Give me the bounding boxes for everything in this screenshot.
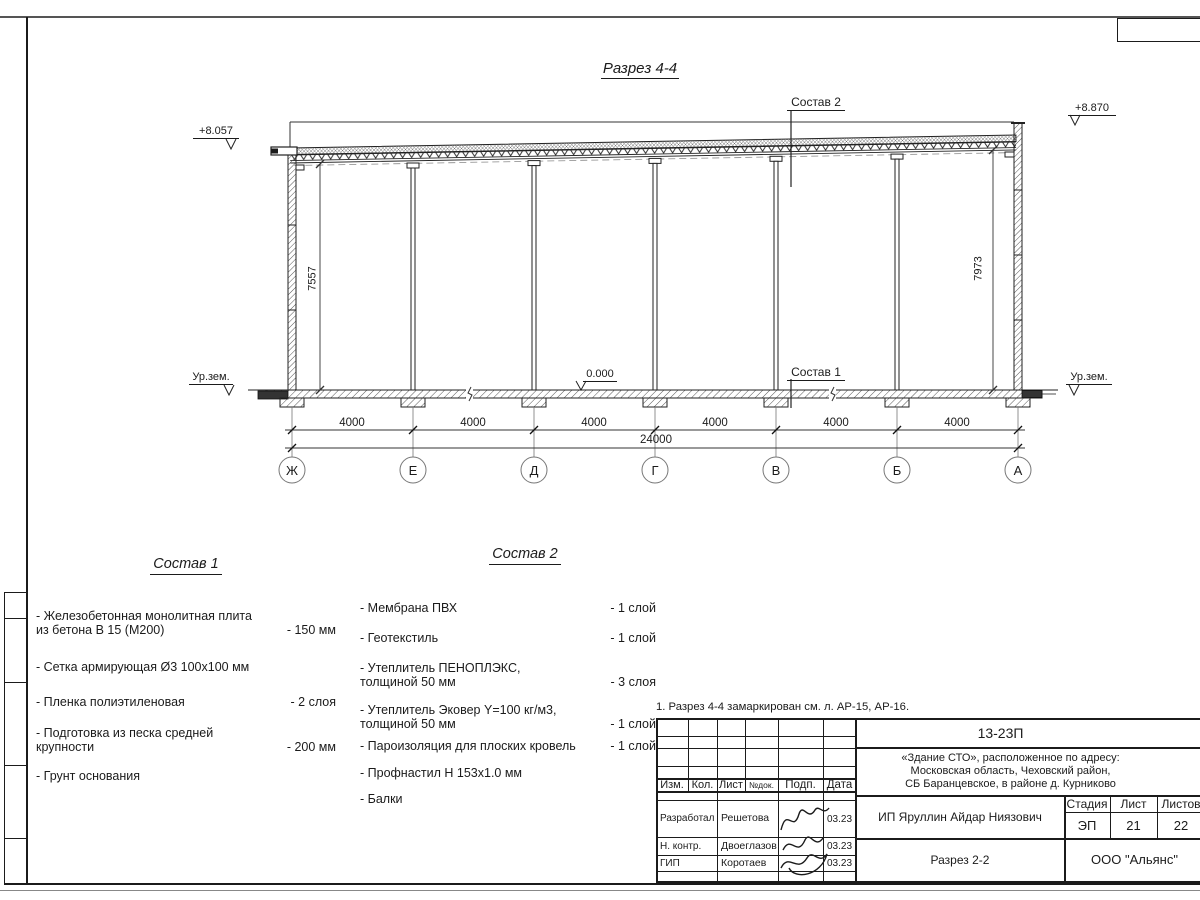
axis-extension-lines: [292, 407, 1018, 457]
bay-dimension: 4000: [443, 417, 503, 429]
header-ndok: №док.: [745, 778, 778, 791]
composition-1-heading-text: Состав 1: [150, 556, 221, 575]
list-item: - Пароизоляция для плоских кровель- 1 сл…: [360, 739, 656, 754]
signature-scribbles: [775, 794, 839, 882]
list-item: - Грунт основания: [36, 769, 336, 784]
axis-label: Б: [884, 458, 910, 483]
bay-dimension: 4000: [322, 417, 382, 429]
bay-dimension: 4000: [685, 417, 745, 429]
item-name: - Подготовка из песка средней крупности: [36, 726, 274, 755]
frame-bottom-line: [4, 883, 1200, 885]
item-name: - Утеплитель ПЕНОПЛЭКС, толщиной 50 мм: [360, 661, 598, 690]
address-line: Московская область, Чеховский район,: [911, 765, 1111, 778]
sheet-edge-line: [0, 890, 1200, 891]
left-wall: [271, 147, 297, 390]
list-item: - Геотекстиль- 1 слой: [360, 631, 656, 646]
drawing-title: Разрез 4-4: [585, 60, 695, 77]
titleblock-line: [656, 881, 1200, 883]
bay-dimension: 4000: [806, 417, 866, 429]
header-data: Дата: [823, 778, 856, 791]
row-role: Н. контр.: [656, 837, 721, 855]
elevation-top-right: +8.870: [1068, 102, 1116, 116]
axis-label: Е: [400, 458, 426, 483]
margin-line: [4, 592, 26, 593]
composition-2-heading: Состав 2: [360, 546, 656, 563]
margin-line: [4, 618, 26, 619]
height-dimension-left: 7557: [307, 249, 320, 309]
titleblock-line: [656, 791, 856, 793]
leader-label-sostav1-text: Состав 1: [791, 365, 841, 379]
item-qty: - 2 слоя: [291, 695, 336, 710]
ground-level-right: Ур.зем.: [1066, 371, 1112, 385]
axis-label: А: [1005, 458, 1031, 483]
item-qty: - 1 слой: [610, 601, 656, 616]
leader-label-sostav2: Состав 2: [787, 95, 845, 111]
list-item: - Подготовка из песка средней крупности-…: [36, 726, 336, 755]
item-name: - Профнастил Н 153х1.0 мм: [360, 766, 598, 781]
axis-label: Д: [521, 458, 547, 483]
drawing-title-text: Разрез 4-4: [601, 60, 679, 79]
signature-2: [781, 837, 827, 875]
elevation-top-left: +8.057: [193, 125, 239, 139]
bay-dimension: 4000: [564, 417, 624, 429]
columns: [296, 152, 1014, 390]
titleblock-line: [656, 748, 856, 749]
composition-list-2: Состав 2 - Мембрана ПВХ- 1 слой - Геотек…: [360, 546, 656, 806]
leader-label-sostav2-text: Состав 2: [791, 95, 841, 109]
list-item: - Профнастил Н 153х1.0 мм: [360, 766, 656, 781]
margin-line: [4, 592, 5, 883]
margin-line: [4, 765, 26, 766]
axis-label: Ж: [279, 458, 305, 483]
row-name: Решетова: [717, 805, 782, 831]
item-name: - Мембрана ПВХ: [360, 601, 598, 616]
header-izm: Изм.: [656, 778, 688, 791]
list-item: - Утеплитель ПЕНОПЛЭКС, толщиной 50 мм- …: [360, 661, 656, 690]
drawing-note: 1. Разрез 4-4 замаркирован см. л. АР-15,…: [656, 701, 936, 713]
client-name: ИП Яруллин Айдар Ниязович: [856, 795, 1064, 838]
title-block: Изм. Кол. Лист №док. Подп. Дата Разработ…: [656, 718, 1200, 883]
item-name: - Балки: [360, 792, 598, 807]
composition-list-1: Состав 1 - Железобетонная монолитная пли…: [36, 556, 336, 783]
item-name: - Сетка армирующая Ø3 100х100 мм: [36, 660, 274, 675]
item-qty: - 200 мм: [287, 740, 336, 755]
height-dimension-right: 7973: [973, 239, 986, 299]
ground-level-left: Ур.зем.: [189, 371, 233, 385]
titleblock-line: [656, 736, 856, 737]
list-item: - Утеплитель Эковер Y=100 кг/м3, толщино…: [360, 703, 656, 732]
list-item: - Пленка полиэтиленовая- 2 слоя: [36, 695, 336, 710]
leader-label-sostav1: Состав 1: [787, 365, 845, 381]
header-podp: Подп.: [778, 778, 823, 791]
item-name: - Грунт основания: [36, 769, 274, 784]
composition-1-heading: Состав 1: [36, 556, 336, 573]
footings: [280, 398, 1030, 407]
list-item: - Балки: [360, 792, 656, 807]
sheet-label: Лист: [1110, 795, 1157, 812]
list-item: - Мембрана ПВХ- 1 слой: [360, 601, 656, 616]
bay-dimension: 4000: [927, 417, 987, 429]
section-name: Разрез 2-2: [856, 838, 1064, 881]
drawing-sheet: Разрез 4-4 +8.057 +8.870 0.000 Ур.зем. У…: [0, 0, 1200, 900]
sheets-value: 22: [1157, 812, 1200, 838]
address-line: «Здание СТО», расположенное по адресу:: [901, 752, 1119, 765]
row-role: ГИП: [656, 855, 721, 871]
stage-label: Стадия: [1064, 795, 1110, 812]
axis-label: В: [763, 458, 789, 483]
list-item: - Сетка армирующая Ø3 100х100 мм: [36, 660, 336, 675]
item-qty: - 1 слой: [610, 717, 656, 732]
item-qty: - 1 слой: [610, 739, 656, 754]
item-name: - Геотекстиль: [360, 631, 598, 646]
item-name: - Пленка полиэтиленовая: [36, 695, 274, 710]
list-item: - Железобетонная монолитная плита из бет…: [36, 609, 336, 638]
item-name: - Железобетонная монолитная плита из бет…: [36, 609, 274, 638]
company-name: ООО "Альянс": [1064, 838, 1200, 881]
titleblock-line: [656, 766, 856, 767]
sheets-label: Листов: [1157, 795, 1200, 812]
composition-2-heading-text: Состав 2: [489, 546, 560, 565]
margin-line: [4, 682, 26, 683]
doc-number: 13-23П: [856, 718, 1200, 747]
row-role: Разработал: [656, 805, 721, 831]
stage-value: ЭП: [1064, 812, 1110, 838]
item-qty: - 150 мм: [287, 623, 336, 638]
signature-1: [781, 808, 829, 830]
address-line: СБ Баранцевское, в районе д. Курниково: [905, 778, 1116, 791]
item-name: - Пароизоляция для плоских кровель: [360, 739, 598, 754]
total-dimension: 24000: [628, 434, 684, 446]
axis-label: Г: [642, 458, 668, 483]
row-name: Коротаев: [717, 855, 782, 871]
margin-line: [4, 838, 26, 839]
item-qty: - 3 слоя: [611, 675, 656, 690]
header-list: Лист: [717, 778, 745, 791]
sheet-value: 21: [1110, 812, 1157, 838]
header-kol: Кол.: [688, 778, 717, 791]
project-address: «Здание СТО», расположенное по адресу: М…: [856, 747, 1200, 795]
elevation-zero: 0.000: [583, 368, 617, 382]
right-wall: [1011, 123, 1025, 390]
row-name: Двоеглазов: [717, 837, 782, 855]
item-qty: - 1 слой: [610, 631, 656, 646]
item-name: - Утеплитель Эковер Y=100 кг/м3, толщино…: [360, 703, 598, 732]
